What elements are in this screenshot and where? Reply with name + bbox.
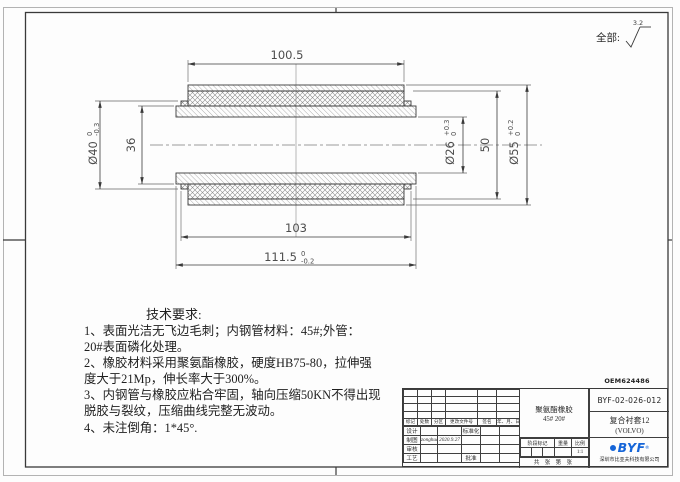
dim-length-rubber: 103 <box>285 221 307 235</box>
tech-note-line: 20#表面磷化处理。 <box>84 339 400 355</box>
process-row: 工艺 批准 <box>404 453 520 462</box>
dim-dia55: Ø55 +0.2 0 <box>507 119 522 164</box>
company-cell: BYF® 深圳市比亚夫科技有限公司 <box>590 438 669 467</box>
svg-text:50: 50 <box>478 138 492 153</box>
title-block-left: 标记 处数 分区 更改文件号 签名 年、月、日 设计 标准化 制图 zonghu… <box>403 389 519 468</box>
sheet-count-row: 共 张 第 张 <box>520 457 588 467</box>
stage-table: 阶段标记 重量 比例 1:1 <box>520 438 589 457</box>
signature-table: 设计 标准化 制图 zonghua 2020.9.27 审核 工艺 批准 <box>403 426 520 463</box>
material-cell: 聚氨酯橡胶 45# 20# <box>520 389 588 438</box>
surface-note-label: 全部: <box>596 31 620 44</box>
inner-tube-bottom <box>176 173 416 184</box>
tech-note-line: 脱胶与裂纹，压缩曲线完整无波动。 <box>84 403 400 419</box>
check-row: 审核 <box>404 444 520 453</box>
revision-table: 标记 处数 分区 更改文件号 签名 年、月、日 <box>403 389 520 426</box>
rubber-flange-bottom-right <box>404 184 411 189</box>
svg-text:0: 0 <box>514 132 522 136</box>
dim-length-total: 111.5 0 -0.2 <box>264 250 314 266</box>
title-block: 标记 处数 分区 更改文件号 签名 年、月、日 设计 标准化 制图 zonghu… <box>402 388 668 467</box>
revision-header-row: 标记 处数 分区 更改文件号 签名 年、月、日 <box>404 418 520 425</box>
rubber-layer-top <box>188 91 404 106</box>
drawing-number: BYF-02-026-012 <box>590 389 669 412</box>
rubber-flange-top-right <box>404 101 411 106</box>
tech-note-line: 4、未注倒角：1*45°. <box>84 420 400 436</box>
technical-requirements: 技术要求: 1、表面光洁无飞边毛刺；内钢管材料：45#;外管： 20#表面磷化处… <box>84 306 400 436</box>
outer-tube-bottom <box>188 199 404 205</box>
company-name: 深圳市比亚夫科技有限公司 <box>590 456 669 463</box>
dim-dia50: 50 <box>478 138 492 153</box>
svg-text:Ø55: Ø55 <box>507 141 521 165</box>
tech-requirements-title: 技术要求: <box>84 306 400 323</box>
draft-row: 制图 zonghua 2020.9.27 <box>404 435 520 444</box>
svg-text:36: 36 <box>124 138 138 153</box>
svg-text:0: 0 <box>450 132 458 136</box>
tech-note-line: 度大于21Mp，伸长率大于300%。 <box>84 371 400 387</box>
scale-value: 1:1 <box>572 448 589 457</box>
rubber-layer-bottom <box>188 184 404 199</box>
svg-text:-0.3: -0.3 <box>93 123 101 136</box>
design-row: 设计 标准化 <box>404 426 520 435</box>
title-block-middle: 聚氨酯橡胶 45# 20# 阶段标记 重量 比例 1:1 共 张 第 张 <box>519 389 589 468</box>
tech-note-line: 1、表面光洁无飞边毛刺；内钢管材料：45#;外管： <box>84 323 400 339</box>
tech-note-line: 2、橡胶材料采用聚氨酯橡胶，硬度HB75-80，拉伸强 <box>84 355 400 371</box>
svg-text:Ø40: Ø40 <box>86 141 100 165</box>
rubber-flange-bottom-left <box>181 184 188 189</box>
rubber-flange-top-left <box>181 101 188 106</box>
roughness-value: 3.2 <box>633 19 643 27</box>
oem-code: OEM624486 <box>588 377 666 385</box>
drawing-sheet: 100.5 Ø40 0 -0.3 36 Ø26 +0.3 0 50 <box>0 0 680 482</box>
tech-note-line: 3、内钢管与橡胶应粘合牢固，轴向压缩50KN不得出现 <box>84 387 400 403</box>
roughness-symbol-icon <box>626 27 651 47</box>
outer-tube-top <box>188 85 404 91</box>
svg-text:-0.2: -0.2 <box>301 258 314 266</box>
surface-roughness-note: 全部: 3.2 <box>596 19 651 47</box>
dim-dia36: 36 <box>124 138 138 153</box>
svg-text:Ø26: Ø26 <box>443 141 457 165</box>
dim-dia40: Ø40 0 -0.3 <box>86 123 101 165</box>
part-name-cell: 复合衬套12 (VOLVO) <box>590 412 669 438</box>
dim-dia26: Ø26 +0.3 0 <box>443 119 458 164</box>
byf-logo-icon <box>610 445 616 451</box>
dim-length-outer: 100.5 <box>271 48 304 62</box>
svg-text:111.5: 111.5 <box>264 250 297 264</box>
title-block-right: BYF-02-026-012 复合衬套12 (VOLVO) BYF® 深圳市比亚… <box>589 389 669 468</box>
inner-tube-top <box>176 106 416 117</box>
byf-logo: BYF® <box>590 440 669 455</box>
